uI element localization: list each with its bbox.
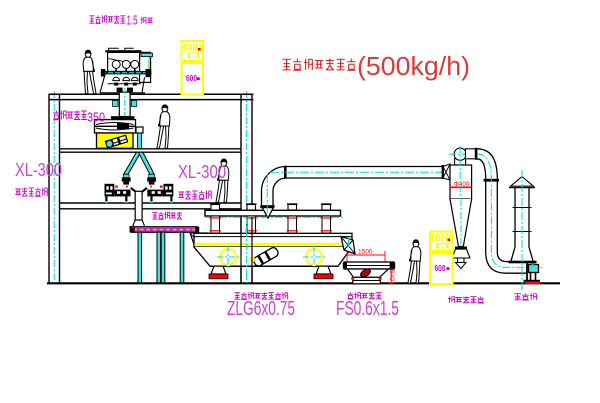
svg-text:XL-300: XL-300 xyxy=(178,162,226,182)
svg-text:350: 350 xyxy=(87,110,105,125)
svg-text:600: 600 xyxy=(186,73,197,83)
svg-text:600: 600 xyxy=(435,263,446,273)
svg-text:(500kg/h): (500kg/h) xyxy=(357,53,470,81)
svg-text:XL-300: XL-300 xyxy=(15,160,62,180)
svg-text:ZLG6x0.75: ZLG6x0.75 xyxy=(227,297,295,320)
svg-text:540: 540 xyxy=(388,270,395,281)
svg-text:1.5: 1.5 xyxy=(127,14,138,28)
svg-text:1500: 1500 xyxy=(358,249,373,256)
svg-text:Φ400: Φ400 xyxy=(454,181,470,188)
svg-text:FS0.6x1.5: FS0.6x1.5 xyxy=(336,297,399,320)
